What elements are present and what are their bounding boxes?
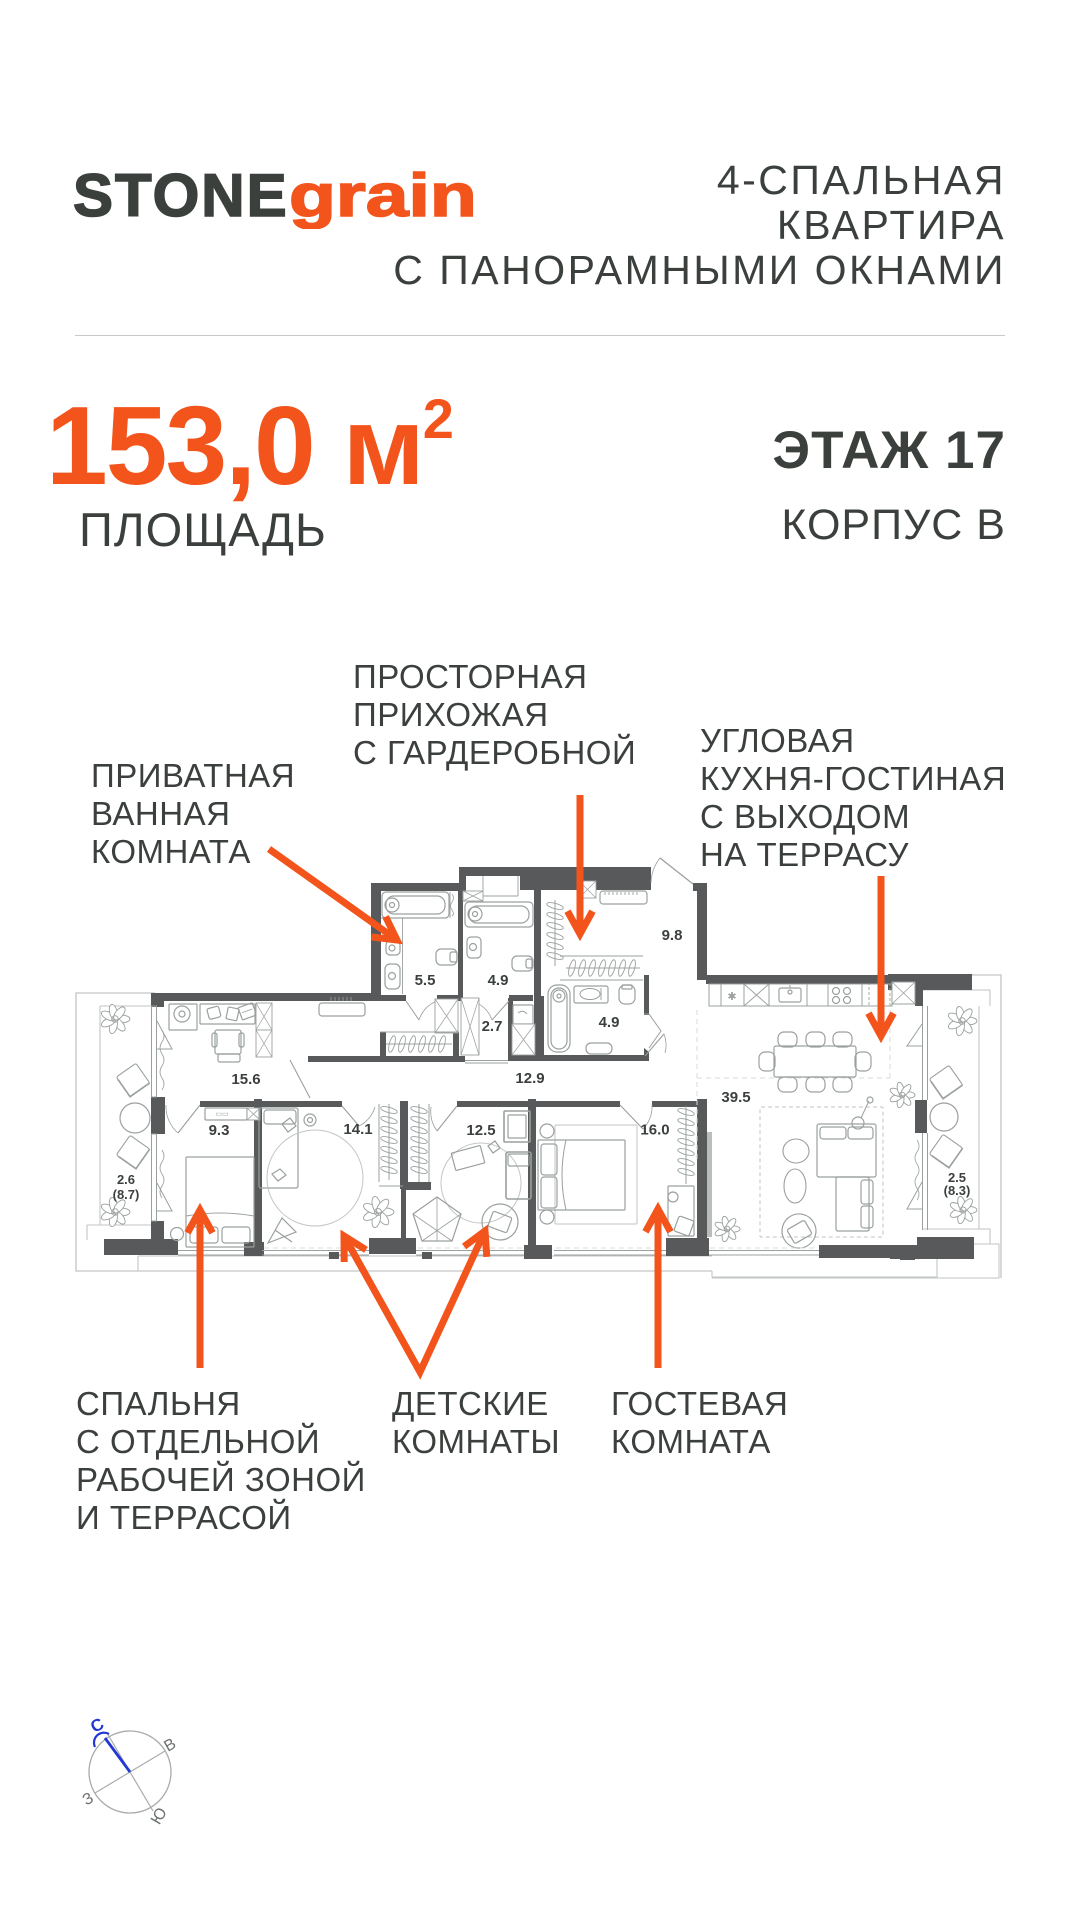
svg-text:2.7: 2.7 [482,1018,503,1035]
svg-text:(8.3): (8.3) [944,1183,971,1198]
svg-text:12.9: 12.9 [515,1070,544,1087]
svg-text:9.3: 9.3 [209,1122,230,1139]
svg-text:16.0: 16.0 [640,1122,669,1139]
svg-text:14.1: 14.1 [343,1121,372,1138]
svg-text:5.5: 5.5 [415,972,436,989]
svg-text:39.5: 39.5 [721,1089,750,1106]
svg-text:В: В [161,1735,179,1755]
svg-text:2.6: 2.6 [117,1172,135,1187]
svg-text:9.8: 9.8 [662,927,683,944]
svg-text:4.9: 4.9 [599,1014,620,1031]
svg-text:✱: ✱ [727,991,736,1003]
svg-text:15.6: 15.6 [231,1071,260,1088]
svg-text:12.5: 12.5 [466,1122,495,1139]
svg-text:▭▭: ▭▭ [215,1111,228,1118]
svg-text:(8.7): (8.7) [113,1187,140,1202]
svg-text:4.9: 4.9 [488,972,509,989]
